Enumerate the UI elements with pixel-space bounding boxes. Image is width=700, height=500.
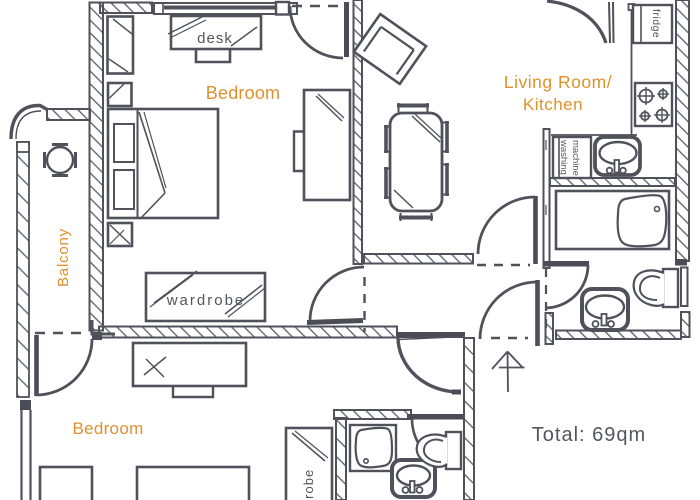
- svg-text:Living Room/: Living Room/: [504, 72, 612, 92]
- svg-text:desk: desk: [197, 30, 233, 47]
- svg-text:wardrobe: wardrobe: [301, 469, 316, 500]
- svg-text:Bedroom: Bedroom: [72, 419, 143, 438]
- svg-text:Total: 69qm: Total: 69qm: [532, 424, 646, 446]
- svg-text:Kitchen: Kitchen: [523, 95, 583, 114]
- svg-text:washing: washing: [558, 139, 569, 175]
- svg-text:Bedroom: Bedroom: [206, 83, 280, 103]
- svg-text:machine: machine: [570, 140, 581, 176]
- svg-text:fridge: fridge: [650, 9, 662, 38]
- svg-text:Balcony: Balcony: [55, 228, 72, 287]
- svg-text:wardrobe: wardrobe: [166, 292, 246, 309]
